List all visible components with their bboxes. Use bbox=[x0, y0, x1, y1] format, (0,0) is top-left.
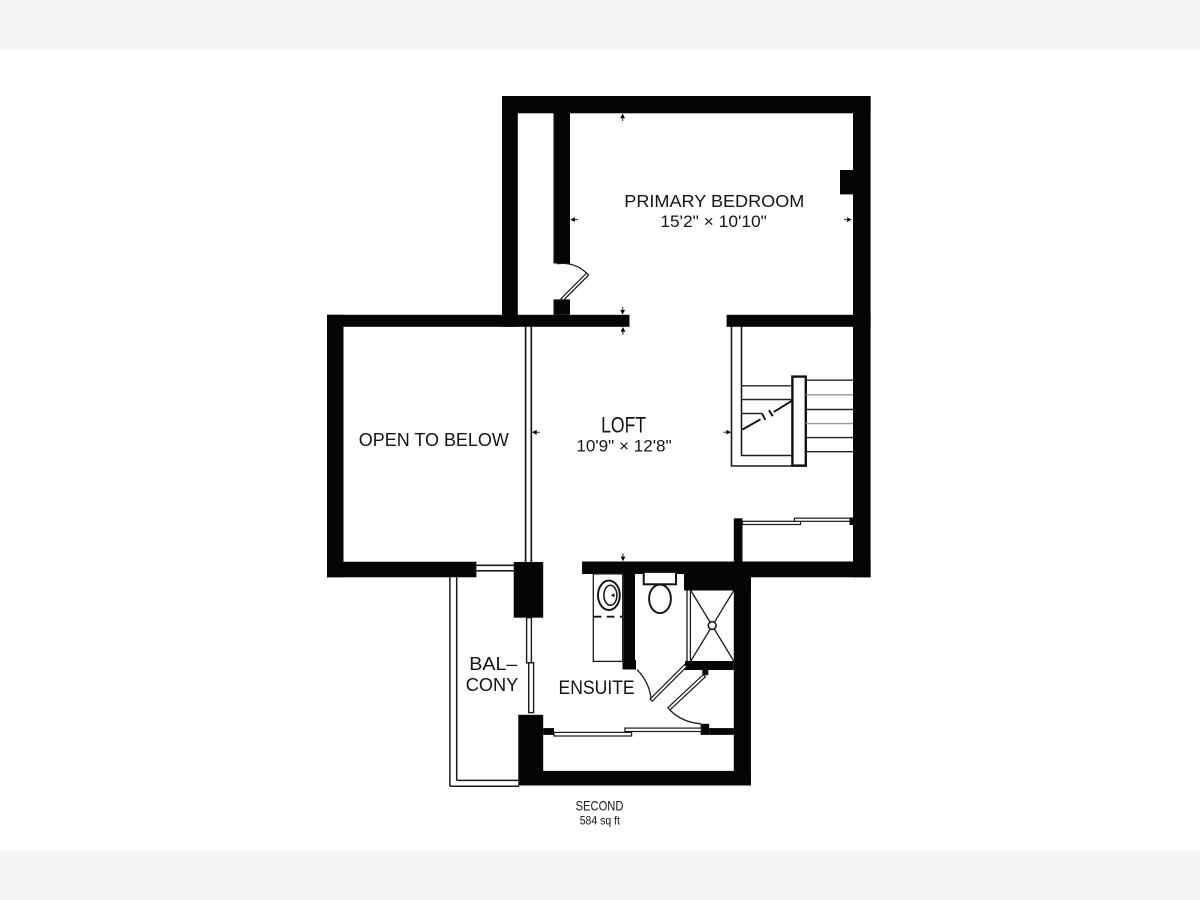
svg-text:CONY: CONY bbox=[466, 674, 519, 695]
svg-text:ENSUITE: ENSUITE bbox=[559, 677, 635, 699]
svg-text:10'9" × 12'8": 10'9" × 12'8" bbox=[576, 438, 672, 456]
svg-text:SECOND: SECOND bbox=[576, 798, 624, 813]
svg-text:584 sq ft: 584 sq ft bbox=[580, 815, 621, 828]
svg-text:LOFT: LOFT bbox=[601, 413, 646, 438]
svg-text:BAL–: BAL– bbox=[469, 653, 518, 674]
svg-text:PRIMARY BEDROOM: PRIMARY BEDROOM bbox=[624, 191, 804, 211]
svg-text:OPEN TO BELOW: OPEN TO BELOW bbox=[359, 429, 509, 450]
svg-text:15'2" × 10'10": 15'2" × 10'10" bbox=[660, 213, 767, 231]
